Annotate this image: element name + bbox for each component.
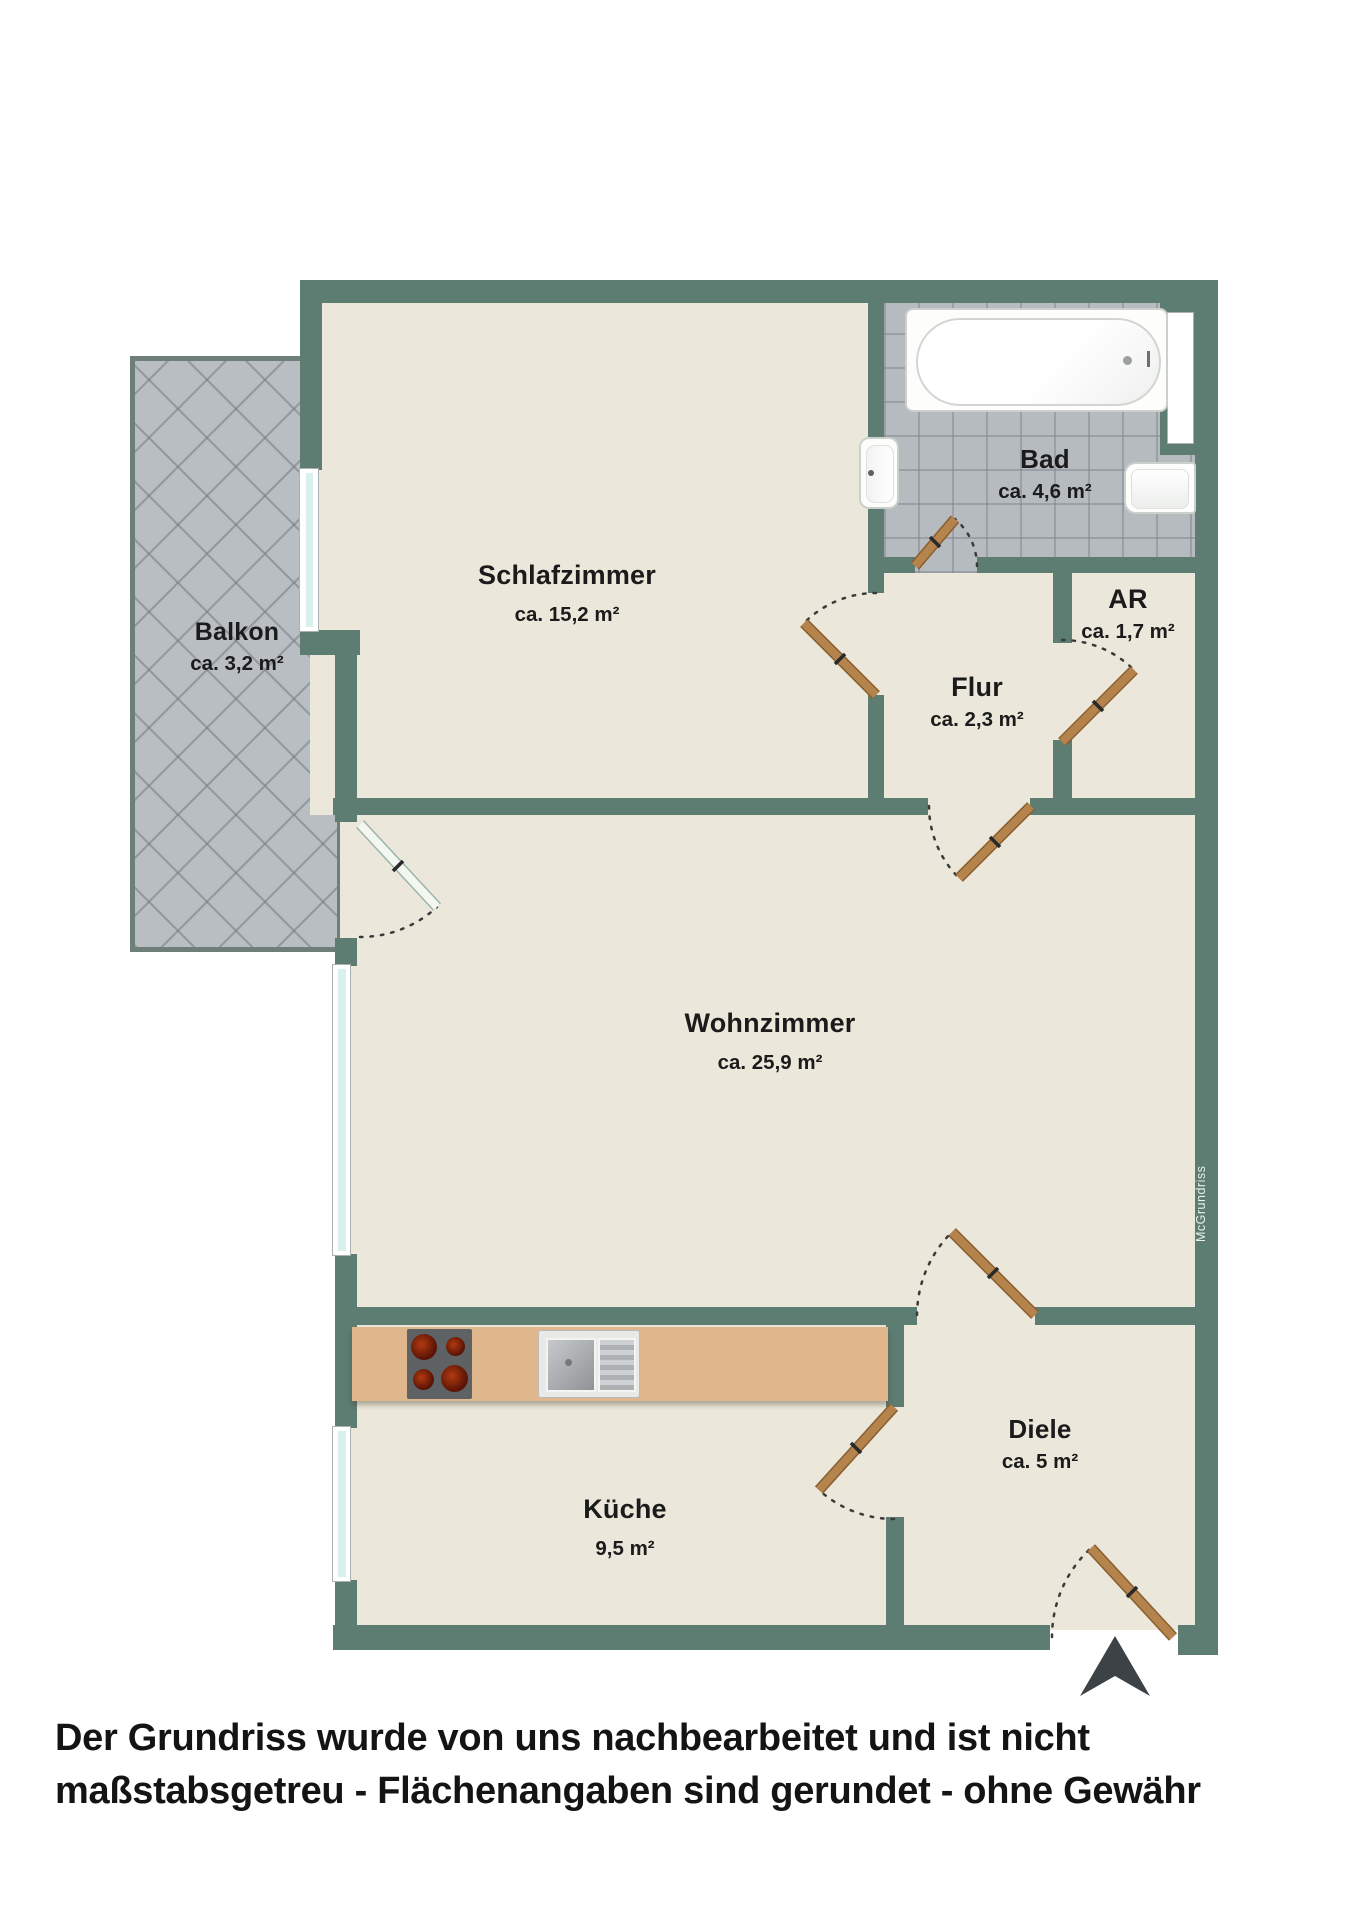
room-label-schlafzimmer: Schlafzimmer ca. 15,2 m² [478,560,656,627]
diele-name: Diele [1002,1414,1078,1445]
room-label-bad: Bad ca. 4,6 m² [998,444,1091,504]
diele-area: ca. 5 m² [1002,1450,1078,1474]
room-label-wohnzimmer: Wohnzimmer ca. 25,9 m² [684,1008,855,1075]
room-label-balkon: Balkon ca. 3,2 m² [190,618,283,676]
wohnzimmer-name: Wohnzimmer [684,1008,855,1039]
room-label-kueche: Küche 9,5 m² [583,1494,667,1561]
doors-overlay [0,0,1357,1920]
room-label-diele: Diele ca. 5 m² [1002,1414,1078,1474]
balkon-name: Balkon [190,618,283,647]
flur-name: Flur [930,672,1023,703]
kueche-area: 9,5 m² [583,1537,667,1561]
schlafzimmer-name: Schlafzimmer [478,560,656,591]
bedroom-door [804,593,876,695]
kitchen-door [819,1407,894,1519]
schlafzimmer-area: ca. 15,2 m² [478,603,656,627]
room-label-ar: AR ca. 1,7 m² [1081,584,1174,644]
disclaimer-line1: Der Grundriss wurde von uns nachbearbeit… [55,1712,1201,1765]
flur-area: ca. 2,3 m² [930,708,1023,732]
storage-door [1062,640,1134,742]
ar-area: ca. 1,7 m² [1081,620,1174,644]
room-label-flur: Flur ca. 2,3 m² [930,672,1023,732]
bad-area: ca. 4,6 m² [998,480,1091,504]
disclaimer-line2: maßstabsgetreu - Flächenangaben sind ger… [55,1765,1201,1818]
balcony-door [360,824,437,937]
entrance-door [1052,1548,1173,1637]
bad-name: Bad [998,444,1091,475]
disclaimer-text: Der Grundriss wurde von uns nachbearbeit… [55,1712,1201,1818]
bath-door [915,519,977,566]
wohnzimmer-area: ca. 25,9 m² [684,1051,855,1075]
floorplan-canvas: Schlafzimmer ca. 15,2 m² Bad ca. 4,6 m² … [0,0,1357,1920]
kueche-name: Küche [583,1494,667,1525]
living-entryhall-door [917,1232,1035,1315]
ar-name: AR [1081,584,1174,615]
entrance-arrow-icon [1080,1636,1150,1696]
watermark-vendor: McGrundriss [1194,1148,1218,1260]
hallway-living-door [929,806,1031,878]
balkon-area: ca. 3,2 m² [190,652,283,676]
